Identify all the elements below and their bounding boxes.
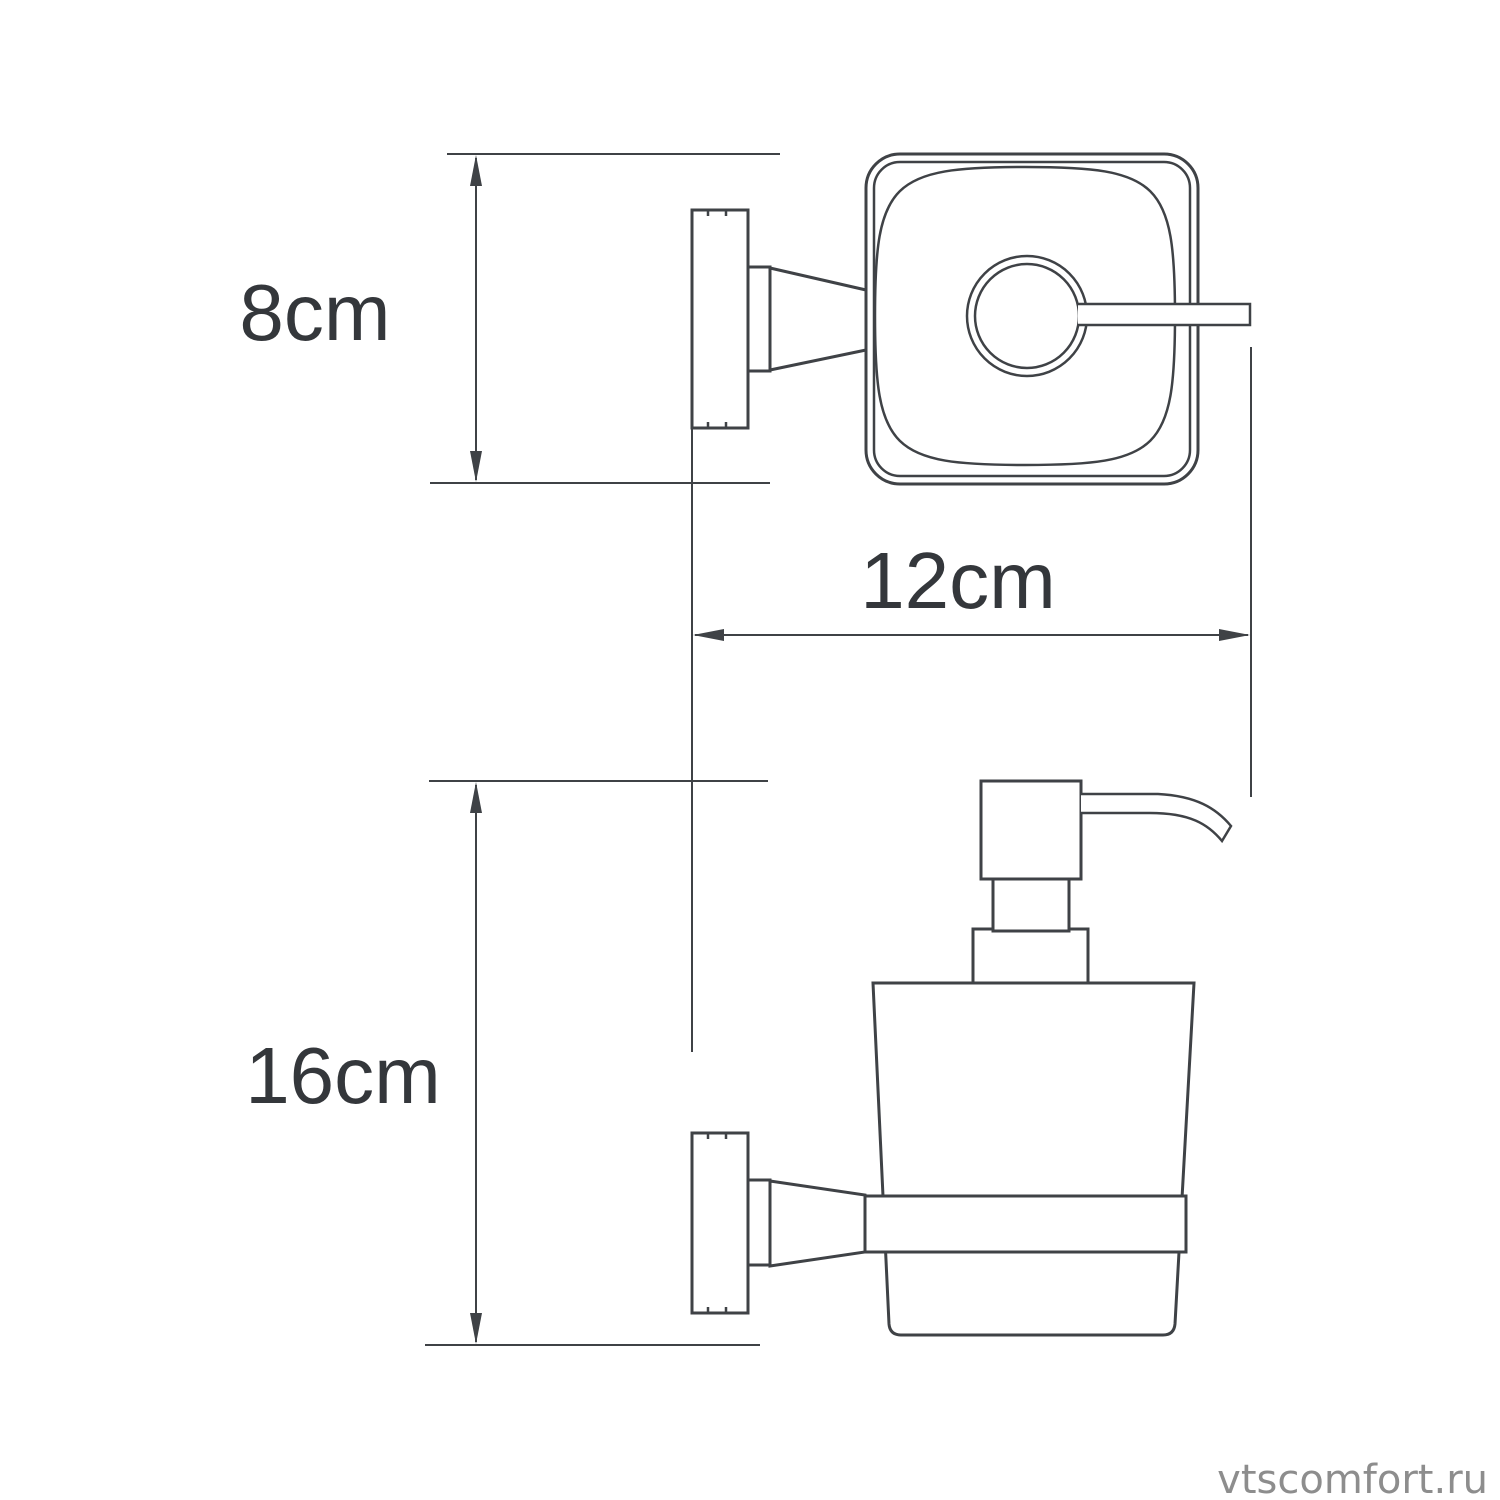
arrowhead-12cm-right-icon: [1219, 629, 1250, 641]
dimension-label-12cm: 12cm: [860, 536, 1056, 625]
top-view-wall-plate: [692, 210, 748, 428]
arrowhead-16cm-up-icon: [470, 782, 482, 813]
dimension-label-16cm: 16cm: [245, 1031, 441, 1120]
side-view-bracket-base: [748, 1180, 770, 1265]
top-view-bracket-base: [748, 267, 770, 371]
arrowhead-12cm-left-icon: [693, 629, 724, 641]
side-view-spout: [1081, 794, 1231, 841]
top-view-spout-fill: [1078, 304, 1250, 325]
dimension-label-8cm: 8cm: [239, 268, 390, 357]
side-view-bracket-arm: [770, 1181, 865, 1266]
side-view-wall-plate: [692, 1133, 748, 1313]
dimension-16cm-group: 16cm: [245, 781, 768, 1345]
side-view-pump-neck: [993, 879, 1069, 931]
technical-drawing-canvas: 8cm 12cm 16cm: [0, 0, 1500, 1500]
arrowhead-8cm-down-icon: [470, 451, 482, 482]
side-view-group: [692, 781, 1231, 1335]
side-view-cup: [873, 983, 1194, 1335]
watermark-text: vtscomfort.ru: [1217, 1457, 1488, 1500]
top-view-bracket-arm: [770, 268, 866, 370]
arrowhead-8cm-up-icon: [470, 155, 482, 186]
side-view-pump-head: [981, 781, 1081, 879]
top-view-group: [692, 154, 1250, 484]
arrowhead-16cm-down-icon: [470, 1313, 482, 1344]
drawing-page: 8cm 12cm 16cm: [0, 0, 1500, 1500]
side-view-pump-collar: [973, 929, 1088, 983]
side-view-holder-bar: [865, 1196, 1186, 1252]
